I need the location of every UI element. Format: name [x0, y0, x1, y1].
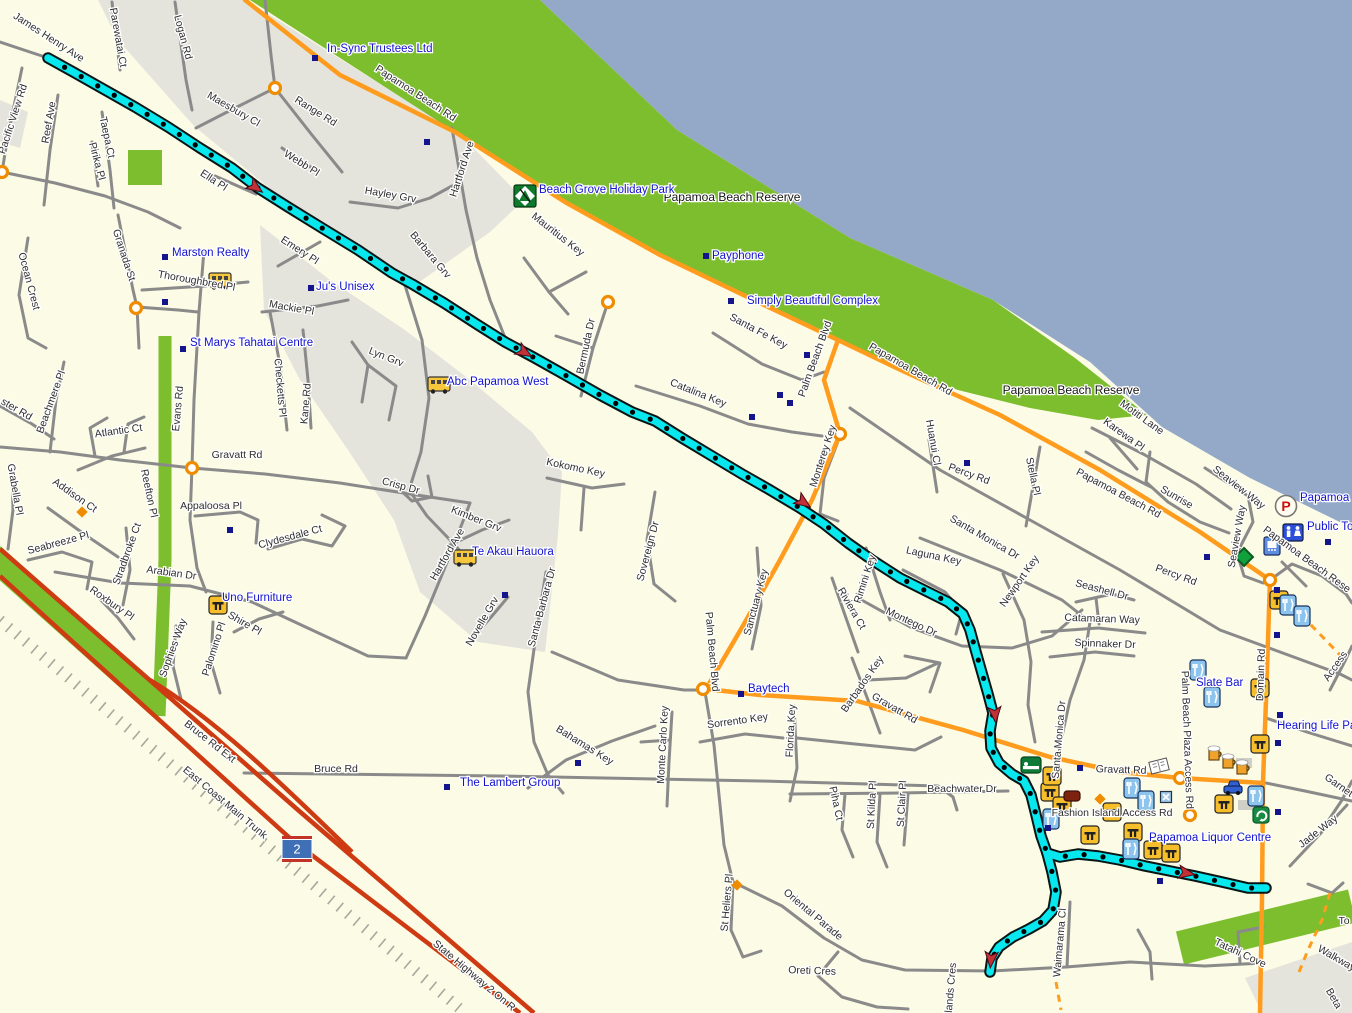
- street-label: Domain Rd: [1254, 648, 1268, 701]
- track-point: [1249, 885, 1254, 890]
- poi-dot[interactable]: [1275, 809, 1281, 815]
- poi-dot[interactable]: [787, 400, 793, 406]
- track-point: [938, 596, 943, 601]
- poi-dot[interactable]: [575, 760, 581, 766]
- parking-icon[interactable]: P: [1276, 496, 1297, 517]
- track-point: [954, 606, 959, 611]
- poi-dot[interactable]: [308, 285, 314, 291]
- poi-label: Beach Grove Holiday Park: [539, 184, 675, 196]
- beer-foam: [1222, 754, 1234, 759]
- poi-dot[interactable]: [1274, 632, 1280, 638]
- track-point: [976, 658, 981, 663]
- track-point: [729, 465, 734, 470]
- poi-label: Te Akau Hauora: [472, 546, 554, 558]
- track-point: [449, 305, 454, 310]
- street-label: Gravatt Rd: [212, 449, 263, 461]
- poi-dot[interactable]: [502, 592, 508, 598]
- track-point: [112, 93, 117, 98]
- track-point: [613, 401, 618, 406]
- track-point: [1043, 846, 1048, 851]
- track-point: [1037, 828, 1042, 833]
- lodging-glyph: [1021, 757, 1041, 773]
- bus-glyph: [457, 553, 461, 557]
- poi-label: Baytech: [748, 683, 790, 695]
- bench-glyph: [1251, 735, 1269, 753]
- track-point: [1017, 776, 1022, 781]
- track-point: [563, 373, 568, 378]
- bench-icon[interactable]: [1251, 735, 1269, 753]
- suv-icon[interactable]: [1064, 791, 1080, 801]
- fork-glyph: [1123, 839, 1139, 859]
- track-point: [303, 216, 308, 221]
- track-point: [630, 410, 635, 415]
- track-point: [352, 245, 357, 250]
- track-point: [762, 484, 767, 489]
- track-point: [1033, 809, 1038, 814]
- street-label: Appaloosa Pl: [180, 500, 242, 512]
- track-point: [513, 345, 518, 350]
- track-point: [1021, 929, 1026, 934]
- track-point: [209, 152, 214, 157]
- bus-glyph: [469, 562, 473, 566]
- poi-label: Papamoa B: [1300, 492, 1352, 504]
- highway-shield-2: 2: [282, 836, 312, 862]
- track-point: [680, 436, 685, 441]
- track-point: [1100, 854, 1105, 859]
- track-point: [79, 74, 84, 79]
- poi-dot[interactable]: [424, 139, 430, 145]
- track-point: [580, 382, 585, 387]
- roundabout: [270, 83, 281, 94]
- street-label: Spinnaker Dr: [1074, 637, 1136, 651]
- fork-glyph: [1248, 786, 1264, 806]
- track-point: [95, 83, 100, 88]
- track-point: [988, 731, 993, 736]
- xicon-icon[interactable]: [1161, 792, 1172, 803]
- street-label: Beachwater Dr: [927, 783, 997, 795]
- fork-icon[interactable]: [1123, 839, 1139, 859]
- bench-glyph: [1215, 795, 1233, 813]
- track-point: [1138, 862, 1143, 867]
- track-point: [1049, 869, 1054, 874]
- poi-label: Papamoa Liquor Centre: [1149, 832, 1271, 844]
- bench-icon[interactable]: [1215, 795, 1233, 813]
- track-point: [1051, 906, 1056, 911]
- track-point: [193, 142, 198, 147]
- poi-dot[interactable]: [749, 414, 755, 420]
- track-point: [1156, 866, 1161, 871]
- track-point: [287, 206, 292, 211]
- poi-dot[interactable]: [1045, 825, 1051, 831]
- beer-icon[interactable]: [1222, 754, 1235, 768]
- fork-icon[interactable]: [1248, 786, 1264, 806]
- track-point: [128, 102, 133, 107]
- car-glyph: [1236, 791, 1240, 795]
- track-point: [368, 256, 373, 261]
- track-point: [664, 426, 669, 431]
- roundabout: [698, 684, 709, 695]
- map-canvas[interactable]: P James Henry AvePacific View RdReef Ave…: [0, 0, 1352, 1013]
- toilet-glyph: [1296, 526, 1300, 530]
- toilet-glyph: [1287, 526, 1291, 530]
- track-point: [811, 514, 816, 519]
- bus-glyph: [463, 553, 467, 557]
- track-point: [856, 548, 861, 553]
- poi-dot[interactable]: [180, 346, 186, 352]
- bench-icon[interactable]: [1124, 823, 1142, 841]
- poi-dot[interactable]: [312, 55, 318, 61]
- fork-icon[interactable]: [1204, 687, 1220, 707]
- track-point: [161, 122, 166, 127]
- bus-glyph: [431, 380, 435, 384]
- poi-label: Uno Furniture: [222, 592, 292, 604]
- track-point: [1005, 938, 1010, 943]
- recycle-icon[interactable]: [1253, 807, 1269, 823]
- track-point: [271, 195, 276, 200]
- roundabout: [131, 303, 142, 314]
- poi-label: Ju's Unisex: [316, 281, 375, 293]
- bench-icon[interactable]: [1162, 844, 1180, 862]
- poi-dot[interactable]: [162, 299, 168, 305]
- area-label: Papamoa Beach Reserve: [1003, 383, 1140, 397]
- beer-icon[interactable]: [1236, 760, 1249, 774]
- bench-glyph: [1162, 844, 1180, 862]
- track-point: [416, 286, 421, 291]
- track-point: [596, 392, 601, 397]
- track-point: [697, 446, 702, 451]
- poi-dot[interactable]: [1157, 878, 1163, 884]
- park-patch: [128, 150, 162, 185]
- track-point: [713, 455, 718, 460]
- poi-label: St Marys Tahatai Centre: [190, 337, 313, 349]
- street-label: St Clair Pl: [895, 780, 909, 827]
- track-point: [547, 364, 552, 369]
- track-point: [400, 276, 405, 281]
- track-point: [1002, 765, 1007, 770]
- track-point: [1028, 791, 1033, 796]
- street-label: Gravatt Rd: [1096, 763, 1147, 777]
- fork-glyph: [1204, 687, 1220, 707]
- track-point: [1212, 878, 1217, 883]
- street-label: Bruce Rd: [314, 763, 358, 775]
- track-point: [745, 475, 750, 480]
- track-point: [888, 569, 893, 574]
- suv-glyph: [1064, 791, 1080, 801]
- track-point: [1082, 852, 1087, 857]
- car-glyph: [1228, 781, 1240, 786]
- poi-label: Abc Papamoa West: [447, 376, 549, 388]
- bench-glyph: [1124, 823, 1142, 841]
- parking-letter: P: [1281, 498, 1290, 514]
- track-point: [1230, 882, 1235, 887]
- roundabout: [1185, 810, 1196, 821]
- poi-label: Hearing Life Pap: [1277, 720, 1352, 732]
- map-viewport[interactable]: P James Henry AvePacific View RdReef Ave…: [0, 0, 1352, 1013]
- track-point: [965, 621, 970, 626]
- track-point: [1038, 920, 1043, 925]
- bus-glyph: [457, 562, 461, 566]
- fork-glyph: [1294, 606, 1310, 626]
- beer-icon[interactable]: [1208, 746, 1221, 760]
- poi-dot[interactable]: [1277, 712, 1283, 718]
- bus-glyph: [431, 389, 435, 393]
- roundabout: [0, 167, 8, 178]
- street-label: Fashion Island Access Rd: [1052, 807, 1173, 819]
- track-point: [778, 494, 783, 499]
- track-point: [433, 295, 438, 300]
- track-point: [826, 525, 831, 530]
- lodging-icon[interactable]: [1021, 757, 1041, 773]
- track-point: [921, 587, 926, 592]
- poi-label: Marston Realty: [172, 247, 250, 259]
- poi-label: Public Toi: [1307, 521, 1352, 533]
- poi-dot[interactable]: [964, 460, 970, 466]
- bus-glyph: [437, 380, 441, 384]
- track-point: [336, 235, 341, 240]
- poi-dot[interactable]: [1204, 554, 1210, 560]
- highway-shield: 2: [282, 836, 312, 862]
- street-label: St Kilda Pl: [865, 780, 880, 829]
- track-point: [986, 694, 991, 699]
- roundabout: [1265, 575, 1276, 586]
- poi-label: Simply Beautiful Complex: [747, 295, 878, 307]
- track-point: [904, 579, 909, 584]
- poi-label: Slate Bar: [1196, 677, 1243, 689]
- beer-foam: [1236, 760, 1248, 765]
- track-point: [240, 174, 245, 179]
- lodging-glyph: [1023, 766, 1039, 769]
- poi-dot[interactable]: [1077, 765, 1083, 771]
- track-point: [465, 316, 470, 321]
- street-label: To: [1338, 915, 1349, 927]
- poi-label: In-Sync Trustees Ltd: [327, 43, 432, 55]
- track-point: [384, 266, 389, 271]
- track-point: [481, 326, 486, 331]
- poi-dot[interactable]: [777, 392, 783, 398]
- poi-dot[interactable]: [162, 254, 168, 260]
- roundabout: [603, 297, 614, 308]
- track-point: [971, 639, 976, 644]
- track-point: [177, 132, 182, 137]
- track-point: [497, 336, 502, 341]
- track-point: [225, 163, 230, 168]
- poi-dot[interactable]: [1274, 587, 1280, 593]
- poi-label: Payphone: [712, 250, 764, 262]
- toilet-glyph: [1287, 531, 1291, 538]
- poi-dot[interactable]: [1275, 740, 1281, 746]
- shield-number: 2: [293, 842, 300, 857]
- track-point: [1175, 870, 1180, 875]
- car-glyph: [1226, 791, 1230, 795]
- bench-icon[interactable]: [1081, 826, 1099, 844]
- fork-icon[interactable]: [1294, 606, 1310, 626]
- poi-label: The Lambert Group: [460, 777, 560, 789]
- street-label: Oreti Cres: [788, 964, 836, 978]
- area-label: Papamoa Beach Reserve: [664, 190, 801, 204]
- poi-dot[interactable]: [703, 253, 709, 259]
- beer-foam: [1208, 746, 1220, 751]
- track-point: [320, 226, 325, 231]
- track-point: [145, 112, 150, 117]
- bus-glyph: [443, 389, 447, 393]
- bench-glyph: [1081, 826, 1099, 844]
- poi-dot[interactable]: [444, 784, 450, 790]
- track-point: [991, 750, 996, 755]
- poi-dot[interactable]: [1325, 539, 1331, 545]
- lodging-glyph: [1024, 762, 1028, 766]
- roundabout: [187, 463, 198, 474]
- track-point: [62, 65, 67, 70]
- poi-dot[interactable]: [728, 298, 734, 304]
- poi-dot[interactable]: [227, 527, 233, 533]
- track-point: [1053, 887, 1058, 892]
- track-point: [841, 537, 846, 542]
- track-point: [1063, 854, 1068, 859]
- track-point: [648, 417, 653, 422]
- camp-icon[interactable]: [514, 185, 536, 207]
- track-point: [981, 676, 986, 681]
- poi-dot[interactable]: [738, 691, 744, 697]
